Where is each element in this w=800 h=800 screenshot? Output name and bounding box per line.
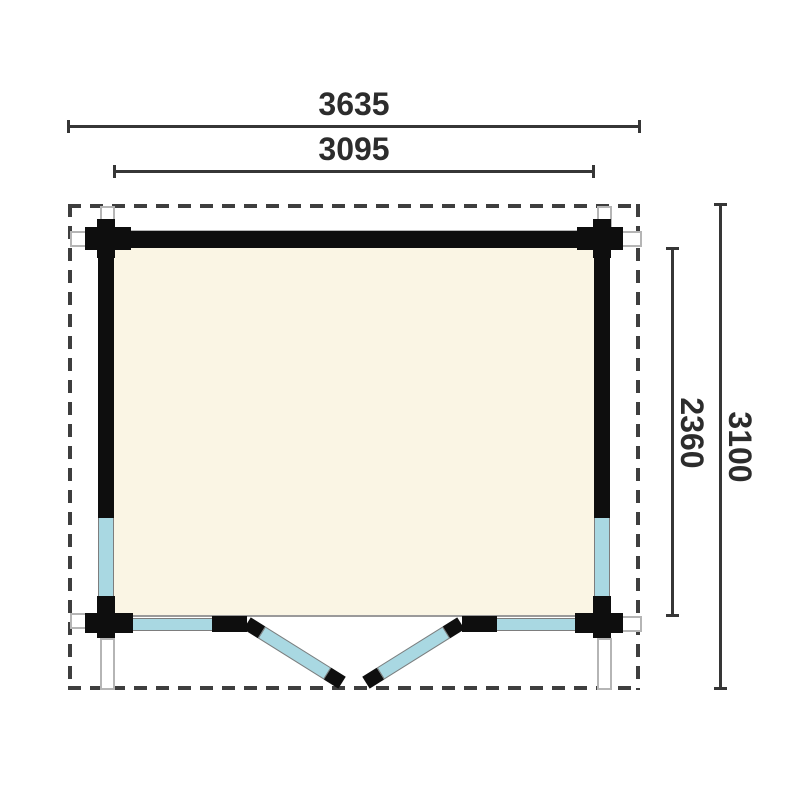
- dim-tick: [592, 165, 595, 178]
- dim-tick: [666, 247, 679, 250]
- dim-label-inner-depth: 2360: [675, 373, 709, 493]
- floor-area: [110, 243, 598, 617]
- dim-label-roof-depth: 3100: [723, 387, 757, 507]
- door-glazing: [258, 626, 332, 680]
- roof-outline-top: [68, 204, 640, 208]
- door-leaf-right: [362, 617, 464, 688]
- dim-tick: [67, 120, 70, 133]
- dim-tick: [638, 120, 641, 133]
- post-top-left-h: [85, 227, 131, 250]
- dim-tick: [113, 165, 116, 178]
- wall-top: [98, 230, 610, 248]
- dim-line-wall-width: [114, 170, 594, 173]
- dim-label-wall-width: 3095: [294, 132, 414, 166]
- dim-tick: [714, 203, 727, 206]
- door-leaf-left: [243, 617, 345, 688]
- wall-right: [594, 230, 610, 520]
- door-glazing: [376, 626, 450, 680]
- dim-tick: [714, 687, 727, 690]
- floorplan-canvas: 3635 3095 2360 3100: [0, 0, 800, 800]
- wall-left: [98, 230, 114, 520]
- roof-outline-bottom: [68, 686, 640, 690]
- window-bottom-left: [133, 618, 212, 631]
- dim-tick: [666, 614, 679, 617]
- dim-label-roof-width: 3635: [294, 87, 414, 121]
- roof-beam-bottom-right-down: [597, 638, 612, 690]
- roof-beam-bottom-left-down: [100, 638, 115, 690]
- wall-bottom-right-jamb: [462, 616, 497, 632]
- post-top-right-h: [577, 227, 623, 250]
- dim-line-roof-width: [68, 125, 640, 128]
- window-right: [594, 518, 610, 598]
- wall-bottom-left-jamb: [212, 616, 247, 632]
- post-bottom-right-h: [575, 613, 623, 633]
- window-bottom-right: [497, 618, 576, 631]
- post-bottom-left-h: [85, 613, 133, 633]
- window-left: [98, 518, 114, 598]
